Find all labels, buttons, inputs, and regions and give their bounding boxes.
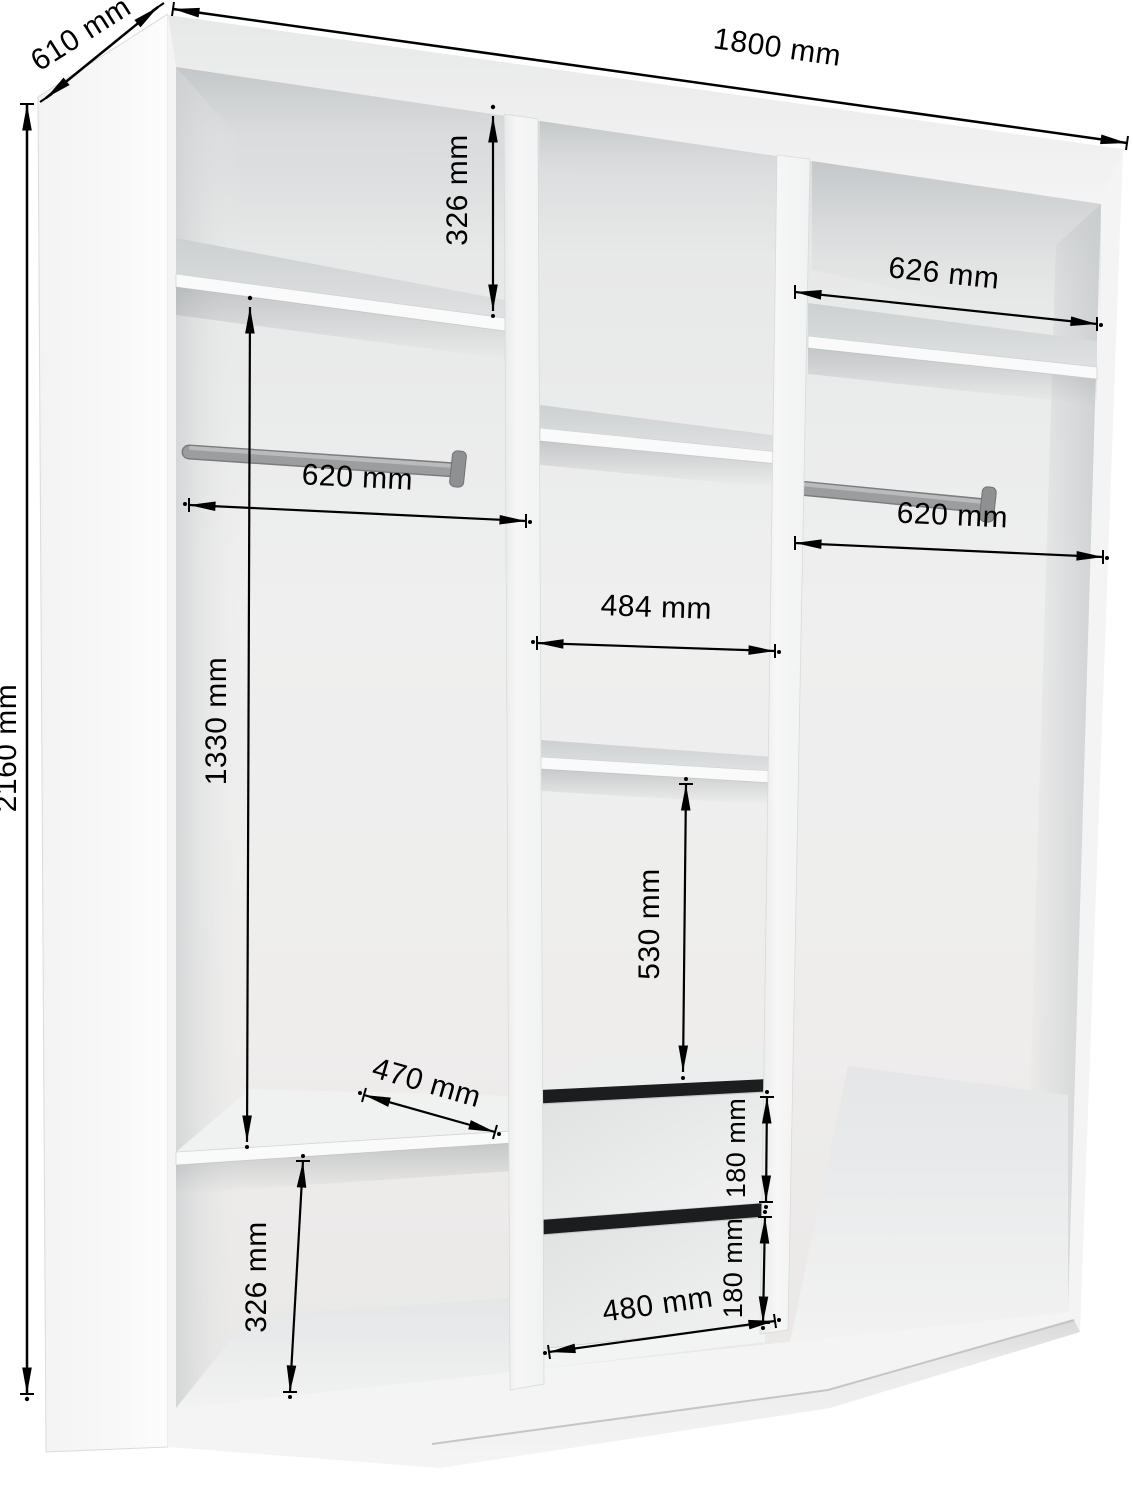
end-dot bbox=[1105, 556, 1109, 560]
end-dot bbox=[497, 1132, 501, 1136]
dimension-label: 620 mm bbox=[301, 458, 414, 496]
end-dot bbox=[761, 1326, 765, 1330]
dimension-label: 1330 mm bbox=[200, 657, 233, 786]
end-dot bbox=[183, 502, 187, 506]
dimension-label: 2160 mm bbox=[0, 684, 23, 813]
left-side-panel bbox=[38, 14, 168, 1452]
end-dot bbox=[765, 1090, 769, 1094]
end-dot bbox=[245, 1145, 249, 1149]
dimension-drawer1-180: 180 mm bbox=[721, 1090, 774, 1209]
dimension-label: 180 mm bbox=[721, 1098, 751, 1199]
end-dot bbox=[777, 650, 781, 654]
end-dot bbox=[531, 640, 535, 644]
end-dot bbox=[684, 777, 688, 781]
end-dot bbox=[288, 1395, 292, 1399]
end-dot bbox=[763, 1210, 767, 1214]
start-dot bbox=[248, 296, 252, 300]
end-dot bbox=[25, 1397, 29, 1401]
end-dot bbox=[491, 314, 495, 318]
dimension-label: 530 mm bbox=[633, 868, 666, 979]
dimension-label: 180 mm bbox=[718, 1218, 748, 1319]
dimension-line bbox=[766, 1097, 767, 1202]
start-dot bbox=[491, 105, 495, 109]
dimension-drawer2-180: 180 mm bbox=[718, 1210, 772, 1330]
end-dot bbox=[681, 1076, 685, 1080]
wardrobe-dimension-diagram: 1800 mm 610 mm 2160 mm 326 mm 626 bbox=[0, 0, 1133, 1500]
end-dot bbox=[777, 1318, 781, 1322]
diagram-canvas: 1800 mm 610 mm 2160 mm 326 mm 626 bbox=[0, 0, 1133, 1500]
left-partition bbox=[504, 114, 544, 1390]
end-dot bbox=[1099, 323, 1103, 327]
dimension-label: 326 mm bbox=[240, 1221, 273, 1332]
end-dot bbox=[764, 1205, 768, 1209]
dimension-label: 484 mm bbox=[600, 589, 712, 626]
end-dot bbox=[528, 520, 532, 524]
dimension-label: 620 mm bbox=[896, 497, 1009, 535]
end-dot bbox=[301, 1154, 305, 1158]
end-dot bbox=[543, 1351, 547, 1355]
dimension-label: 326 mm bbox=[441, 134, 474, 245]
end-dot bbox=[358, 1091, 362, 1095]
